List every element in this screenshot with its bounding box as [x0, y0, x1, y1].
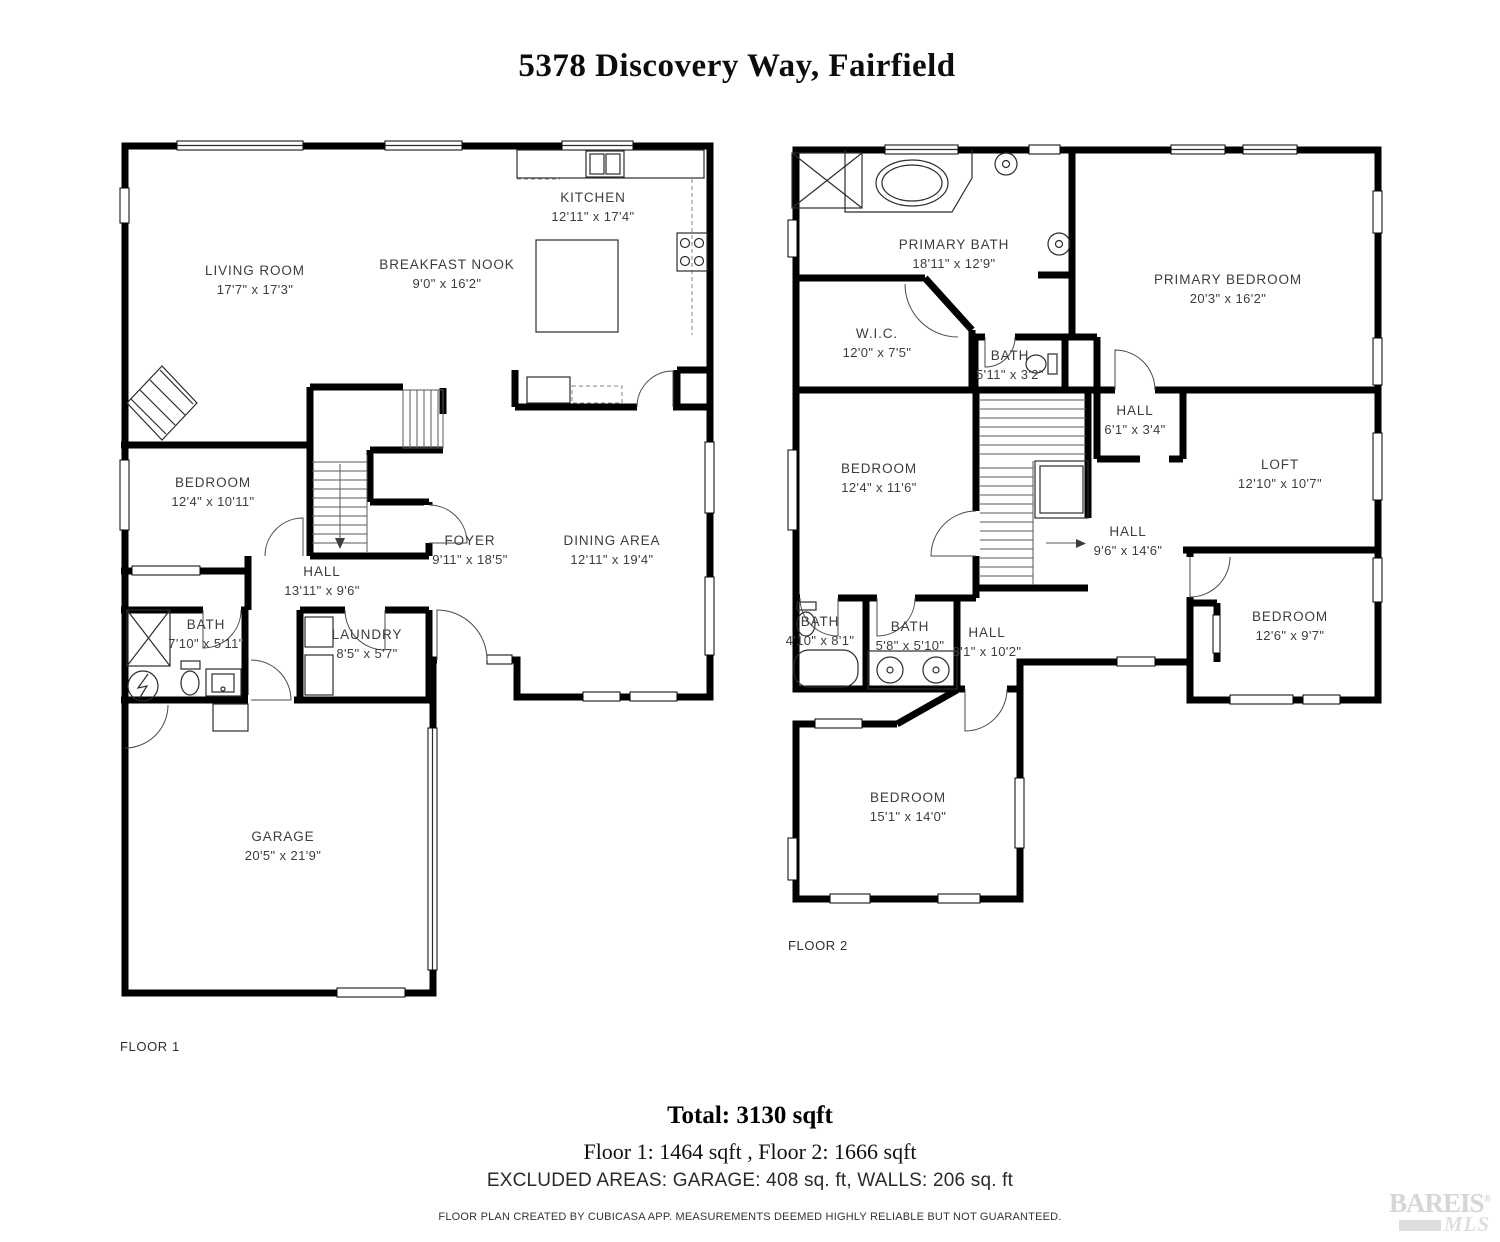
sink	[1048, 233, 1070, 255]
floor1-stairs	[312, 390, 443, 552]
kitchen-fixtures	[517, 150, 707, 403]
room-label-f1-living-room: LIVING ROOM17'7" x 17'3"	[205, 264, 305, 296]
room-label-f1-breakfast-nook: BREAKFAST NOOK9'0" x 16'2"	[379, 258, 514, 290]
room-label-f2-bath-2: BATH5'8" x 5'10"	[876, 620, 945, 652]
room-label-f1-kitchen: KITCHEN12'11" x 17'4"	[551, 191, 634, 223]
logo-bar	[1399, 1220, 1441, 1231]
tub-platform	[845, 150, 972, 212]
floor2-stairs	[980, 400, 1088, 585]
double-vanity	[868, 651, 957, 689]
room-label-f1-dining-area: DINING AREA12'11" x 19'4"	[564, 534, 661, 566]
floor2-exterior-walls	[796, 150, 1378, 899]
sink	[995, 153, 1017, 175]
kitchen-sink	[586, 151, 624, 177]
room-label-f2-primary-bath: PRIMARY BATH18'11" x 12'9"	[899, 238, 1010, 270]
room-label-f1-bedroom: BEDROOM12'4" x 10'11"	[171, 476, 254, 508]
room-label-f2-primary-bedroom: PRIMARY BEDROOM20'3" x 16'2"	[1154, 273, 1302, 305]
fireplace	[127, 366, 197, 440]
soaking-tub	[876, 160, 948, 206]
total-sqft: Total: 3130 sqft	[667, 1102, 833, 1130]
floor1-tag: FLOOR 1	[120, 1039, 180, 1054]
room-label-f2-hall-small: HALL6'1" x 3'4"	[1104, 404, 1165, 436]
kitchen-island	[536, 240, 618, 332]
room-label-f1-foyer: FOYER9'11" x 18'5"	[432, 534, 508, 566]
room-label-f2-hall-lower: HALL8'1" x 10'2"	[953, 626, 1022, 658]
bathtub	[794, 650, 858, 687]
toilet	[1048, 354, 1057, 374]
room-label-f2-hall-main: HALL9'6" x 14'6"	[1094, 525, 1163, 557]
washer	[305, 617, 333, 647]
room-label-f2-loft: LOFT12'10" x 10'7"	[1238, 458, 1322, 490]
toilet	[181, 661, 200, 669]
logo-text-mls: MLS	[1444, 1216, 1490, 1234]
room-label-f2-bedroom-1: BEDROOM12'4" x 11'6"	[841, 462, 917, 494]
room-label-f2-wic: W.I.C.12'0" x 7'5"	[843, 327, 912, 359]
bench	[527, 377, 570, 403]
page-title: 5378 Discovery Way, Fairfield	[518, 48, 955, 85]
room-label-f1-garage: GARAGE20'5" x 21'9"	[245, 830, 322, 862]
excluded-areas: EXCLUDED AREAS: GARAGE: 408 sq. ft, WALL…	[487, 1170, 1013, 1192]
room-label-f1-bath: BATH7'10" x 5'11"	[168, 618, 244, 650]
room-label-f2-bath-1: BATH4'10" x 8'1"	[786, 615, 855, 647]
stairwell-opening	[1035, 461, 1088, 518]
dryer	[305, 655, 333, 695]
room-label-f2-bedroom-3: BEDROOM15'1" x 14'0"	[870, 791, 947, 823]
floor-plan-page: 5378 Discovery Way, Fairfield LIVING ROO…	[0, 0, 1500, 1242]
floor2-tag: FLOOR 2	[788, 938, 848, 953]
floor-sqft-line: Floor 1: 1464 sqft , Floor 2: 1666 sqft	[583, 1139, 916, 1165]
room-label-f1-laundry: LAUNDRY8'5" x 5'7"	[332, 628, 403, 660]
room-label-f2-bedroom-2: BEDROOM12'6" x 9'7"	[1252, 610, 1328, 642]
attribution-line: FLOOR PLAN CREATED BY CUBICASA APP. MEAS…	[438, 1211, 1061, 1223]
bareis-mls-logo: BAREIS® MLS	[1389, 1192, 1490, 1234]
room-label-f2-bath-small: BATH5'11" x 3'2"	[976, 349, 1044, 381]
room-label-f1-hall: HALL13'11" x 9'6"	[284, 565, 360, 597]
